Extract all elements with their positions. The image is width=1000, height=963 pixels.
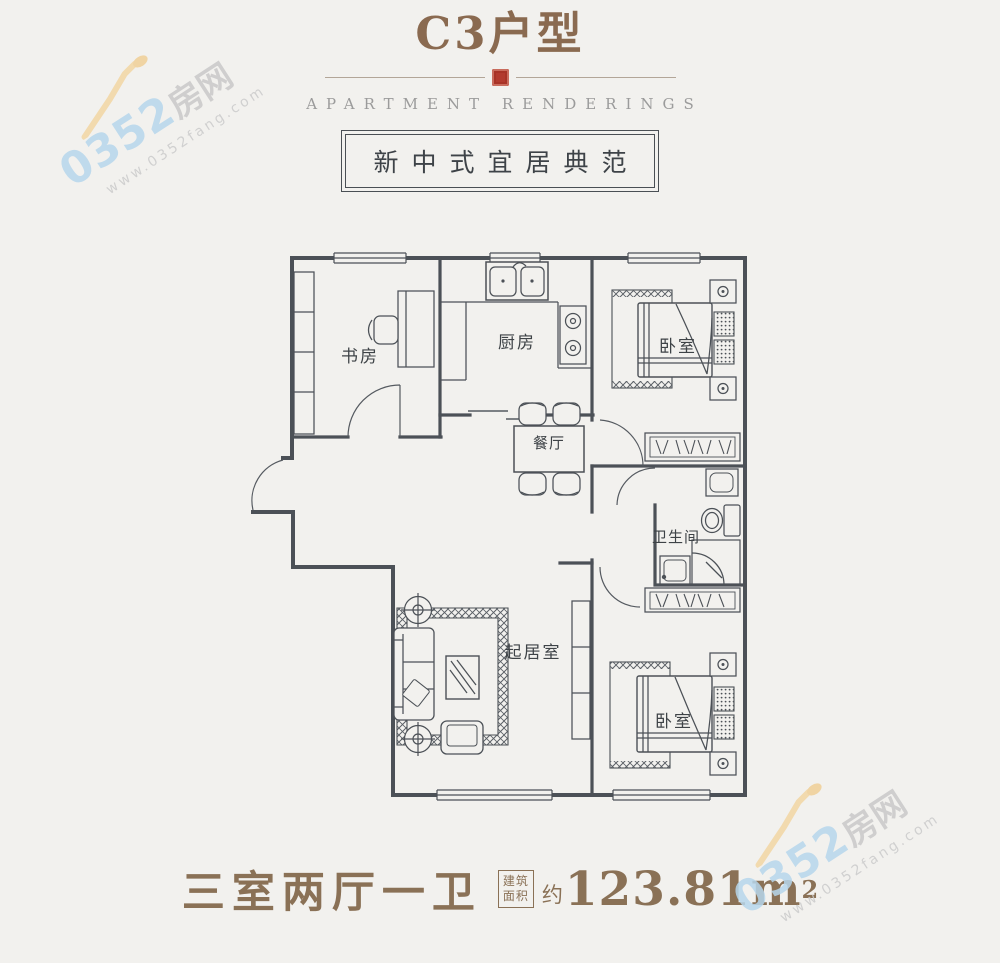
pillow (714, 312, 734, 336)
layout-text: 三室两厅一卫 (182, 858, 482, 920)
door-arcs (252, 385, 655, 607)
kitchen-sink (486, 262, 548, 300)
bathroom-fixtures (660, 469, 740, 585)
dining-chair (519, 473, 546, 495)
entry-door-arc (252, 460, 283, 510)
area-label-line1: 建筑 (503, 874, 529, 889)
room-label-dining: 餐厅 (533, 434, 565, 452)
page-title: C3户型 (0, 10, 1000, 57)
room-label-kitchen: 厨房 (498, 333, 536, 353)
caption: 三室两厅一卫 建筑 面积 约 123.81m2 (0, 858, 1000, 920)
divider-line-left (325, 77, 485, 78)
toilet-tank (724, 505, 740, 536)
bookshelf (294, 272, 314, 434)
area-label-box: 建筑 面积 (498, 870, 534, 908)
divider-line-right (516, 77, 676, 78)
area-value: 123.81m (565, 862, 802, 917)
kitchen-furniture (440, 262, 593, 380)
room-label-bedroom1: 卧室 (659, 337, 697, 357)
living-furniture (394, 593, 590, 756)
room-label-study: 书房 (341, 347, 379, 367)
dining-chair (553, 403, 580, 425)
title-divider (0, 69, 1000, 86)
floorplan: 书房 厨房 卧室 餐厅 卫生间 起居室 卧室 (246, 248, 758, 848)
watermark-name: 房网 (835, 784, 914, 855)
header: C3户型 APARTMENT RENDERINGS 新中式宜居典范 (0, 0, 1000, 192)
pillow (714, 715, 734, 739)
tv-cabinet (572, 601, 590, 739)
area-superscript: 2 (801, 875, 818, 904)
tagline-text: 新中式宜居典范 (345, 134, 654, 188)
tagline-box: 新中式宜居典范 (341, 130, 658, 192)
dining-chair (519, 403, 546, 425)
desk-chair (374, 316, 398, 344)
approx-text: 约 (542, 879, 563, 909)
dining-chair (553, 473, 580, 495)
room-label-bedroom2: 卧室 (655, 712, 693, 732)
pillow (714, 340, 734, 364)
shower (692, 540, 740, 585)
room-label-bathroom: 卫生间 (652, 528, 700, 546)
area-label-line2: 面积 (503, 889, 529, 904)
bedroom2-door-arc (600, 567, 640, 607)
bedroom1-door-arc (600, 420, 643, 466)
room-label-living: 起居室 (505, 643, 562, 663)
pillow (714, 687, 734, 711)
study-door-arc (348, 385, 400, 437)
subtitle: APARTMENT RENDERINGS (0, 95, 1000, 113)
seal-stamp-icon (492, 69, 509, 86)
desk (398, 291, 434, 367)
sofa (394, 628, 434, 720)
bedroom1-furniture (612, 280, 740, 461)
bedroom2-furniture (610, 588, 740, 775)
bathroom-door-arc (617, 468, 655, 505)
